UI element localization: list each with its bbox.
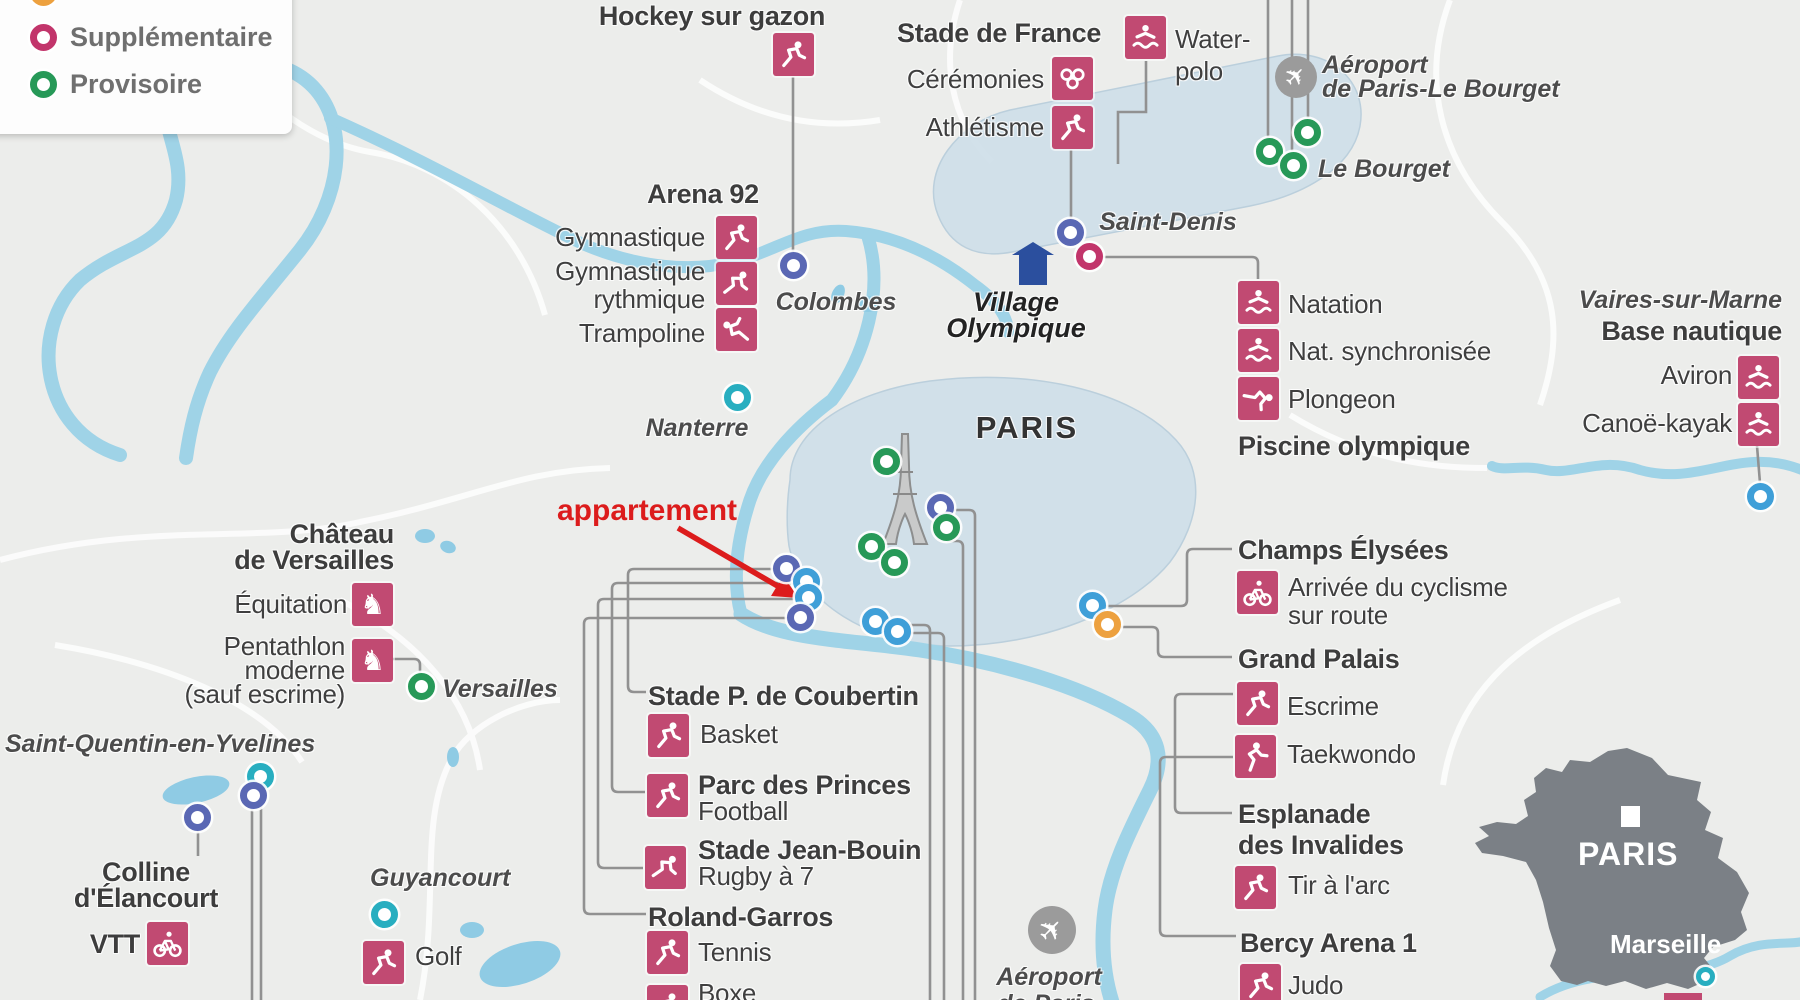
- label-athletisme: Athlétisme: [926, 114, 1044, 141]
- label-colline-2: d'Élancourt: [74, 884, 218, 912]
- label-natation: Natation: [1288, 291, 1382, 318]
- marker-le-bourget-1: [1256, 138, 1283, 165]
- rugby-icon: [645, 846, 686, 889]
- swimming-icon: [1238, 281, 1279, 324]
- label-judo: Judo: [1288, 972, 1343, 999]
- label-stade-de-france: Stade de France: [897, 19, 1101, 47]
- label-gym-rythmique-2: rythmique: [594, 286, 705, 313]
- marker-colombes: [780, 252, 807, 279]
- marker-paris-green-1: [873, 448, 900, 475]
- label-basket: Basket: [700, 721, 778, 748]
- golf-icon: [363, 941, 404, 984]
- label-base-nautique: Base nautique: [1601, 317, 1782, 345]
- modern-pentathlon-icon: ♞: [352, 639, 393, 682]
- label-nanterre: Nanterre: [646, 415, 749, 441]
- label-le-bourget: Le Bourget: [1318, 156, 1450, 182]
- label-coubertin: Stade P. de Coubertin: [648, 682, 919, 710]
- label-chateau-2: de Versailles: [234, 546, 394, 574]
- label-tir-a-larc: Tir à l'arc: [1288, 872, 1390, 899]
- road-cycling-icon: [1237, 571, 1278, 614]
- marker-saint-denis-supplementaire: [1076, 243, 1103, 270]
- marker-appartement-cluster-4: [787, 604, 814, 631]
- hockey-icon: [773, 33, 814, 76]
- rhythmic-gymnastics-icon: [716, 262, 757, 305]
- label-saint-denis: Saint-Denis: [1099, 209, 1237, 235]
- label-guyancourt: Guyancourt: [370, 865, 510, 891]
- label-aviron: Aviron: [1661, 362, 1732, 389]
- label-water-polo-1: Water-: [1175, 26, 1250, 53]
- label-arena92: Arena 92: [647, 180, 759, 208]
- legend-label-provisoire: Provisoire: [70, 70, 202, 98]
- label-canoe-kayak: Canoë-kayak: [1582, 410, 1732, 437]
- label-piscine-olympique: Piscine olympique: [1238, 432, 1470, 460]
- marker-stade-de-france: [1057, 219, 1084, 246]
- trampoline-icon: [716, 308, 757, 351]
- label-aeroport-lb-2: de Paris-Le Bourget: [1322, 76, 1560, 102]
- label-rugby: Rugby à 7: [698, 863, 814, 890]
- ceremonies-icon: [1052, 57, 1093, 100]
- label-ceremonies: Cérémonies: [907, 66, 1044, 93]
- gymnastics-icon: [716, 216, 757, 259]
- legend-ring-partial: [30, 0, 57, 6]
- label-trampoline: Trampoline: [579, 320, 705, 347]
- label-taekwondo: Taekwondo: [1287, 741, 1416, 768]
- label-roland-garros: Roland-Garros: [648, 903, 833, 931]
- marker-paris-green-2: [933, 514, 960, 541]
- legend-ring-provisoire: [30, 71, 57, 98]
- le-bourget-airport-icon: ✈: [1275, 56, 1317, 98]
- olympic-village-icon: [1012, 240, 1054, 291]
- label-grand-palais: Grand Palais: [1238, 645, 1399, 673]
- label-football: Football: [698, 798, 788, 825]
- legend-label-supplementaire: Supplémentaire: [70, 23, 273, 51]
- marker-guyancourt: [371, 901, 398, 928]
- mountain-bike-icon: [147, 922, 188, 965]
- athletics-icon: [1052, 106, 1093, 149]
- label-esplanade-2: des Invalides: [1238, 831, 1404, 859]
- inset-cut-icon: [1664, 993, 1702, 1000]
- label-village-2: Olympique: [946, 314, 1086, 342]
- football-icon: [647, 774, 688, 817]
- label-water-polo-2: polo: [1175, 58, 1223, 85]
- diving-icon: [1238, 377, 1279, 420]
- basketball-icon: [648, 714, 689, 757]
- label-gymnastique: Gymnastique: [555, 224, 705, 251]
- label-vtt: VTT: [90, 930, 140, 958]
- marker-versailles: [408, 673, 435, 700]
- judo-icon: [1240, 964, 1281, 1000]
- tennis-icon: [647, 931, 688, 974]
- label-arrivee-cyclisme-1: Arrivée du cyclisme: [1288, 574, 1508, 601]
- label-aeroport-paris-1: Aéroport: [996, 964, 1102, 990]
- marker-sqy-2: [240, 782, 267, 809]
- water-polo-icon: [1125, 16, 1166, 59]
- label-aeroport-paris-2: de Paris: [997, 991, 1094, 1000]
- map-canvas: ♞ ♞ ✈ ✈ Hockey sur gazon Arena 92 Gymnas…: [0, 0, 1800, 1000]
- label-escrime: Escrime: [1287, 693, 1379, 720]
- marker-le-bourget-2: [1280, 152, 1307, 179]
- label-inset-marseille: Marseille: [1610, 931, 1721, 958]
- marker-le-bourget-3: [1294, 119, 1321, 146]
- label-esplanade-1: Esplanade: [1238, 800, 1370, 828]
- legend-ring-supplementaire: [30, 24, 57, 51]
- marker-paris-green-4: [881, 549, 908, 576]
- marker-vaires: [1747, 483, 1774, 510]
- marker-colline: [184, 804, 211, 831]
- label-nat-synchronisee: Nat. synchronisée: [1288, 338, 1491, 365]
- label-vaires-sur-marne: Vaires-sur-Marne: [1579, 287, 1782, 313]
- archery-icon: [1235, 866, 1276, 909]
- equestrian-icon: ♞: [352, 583, 393, 626]
- label-tennis: Tennis: [698, 939, 771, 966]
- label-boxe: Boxe: [698, 980, 756, 1000]
- marker-champs-elysees: [1094, 611, 1121, 638]
- label-plongeon: Plongeon: [1288, 386, 1395, 413]
- legend-card: Supplémentaire Provisoire: [0, 0, 292, 134]
- label-saint-quentin: Saint-Quentin-en-Yvelines: [5, 731, 315, 757]
- label-equitation: Équitation: [234, 591, 347, 618]
- fencing-icon: [1237, 682, 1278, 725]
- marker-paris-blue-2: [884, 618, 911, 645]
- label-bercy: Bercy Arena 1: [1240, 929, 1417, 957]
- label-versailles: Versailles: [442, 676, 558, 702]
- canoe-kayak-icon: [1738, 403, 1779, 446]
- label-paris: PARIS: [976, 412, 1078, 445]
- rowing-icon: [1738, 356, 1779, 399]
- boxing-icon: [647, 985, 688, 1000]
- marker-paris-green-3: [858, 533, 885, 560]
- label-champs-elysees: Champs Élysées: [1238, 536, 1448, 564]
- label-inset-paris: PARIS: [1578, 838, 1678, 872]
- synchronized-swimming-icon: [1238, 329, 1279, 372]
- marker-nanterre: [724, 384, 751, 411]
- label-colombes: Colombes: [776, 289, 897, 315]
- annotation-appartement: appartement: [557, 495, 737, 527]
- orly-airport-icon: ✈: [1028, 906, 1076, 954]
- inset-paris-square: [1621, 806, 1640, 827]
- taekwondo-icon: [1235, 735, 1276, 778]
- marker-inset-marseille: [1696, 967, 1715, 986]
- label-pentathlon-3: (sauf escrime): [185, 681, 346, 708]
- label-hockey: Hockey sur gazon: [599, 2, 825, 30]
- label-arrivee-cyclisme-2: sur route: [1288, 602, 1388, 629]
- label-gym-rythmique-1: Gymnastique: [555, 258, 705, 285]
- label-golf: Golf: [415, 943, 461, 970]
